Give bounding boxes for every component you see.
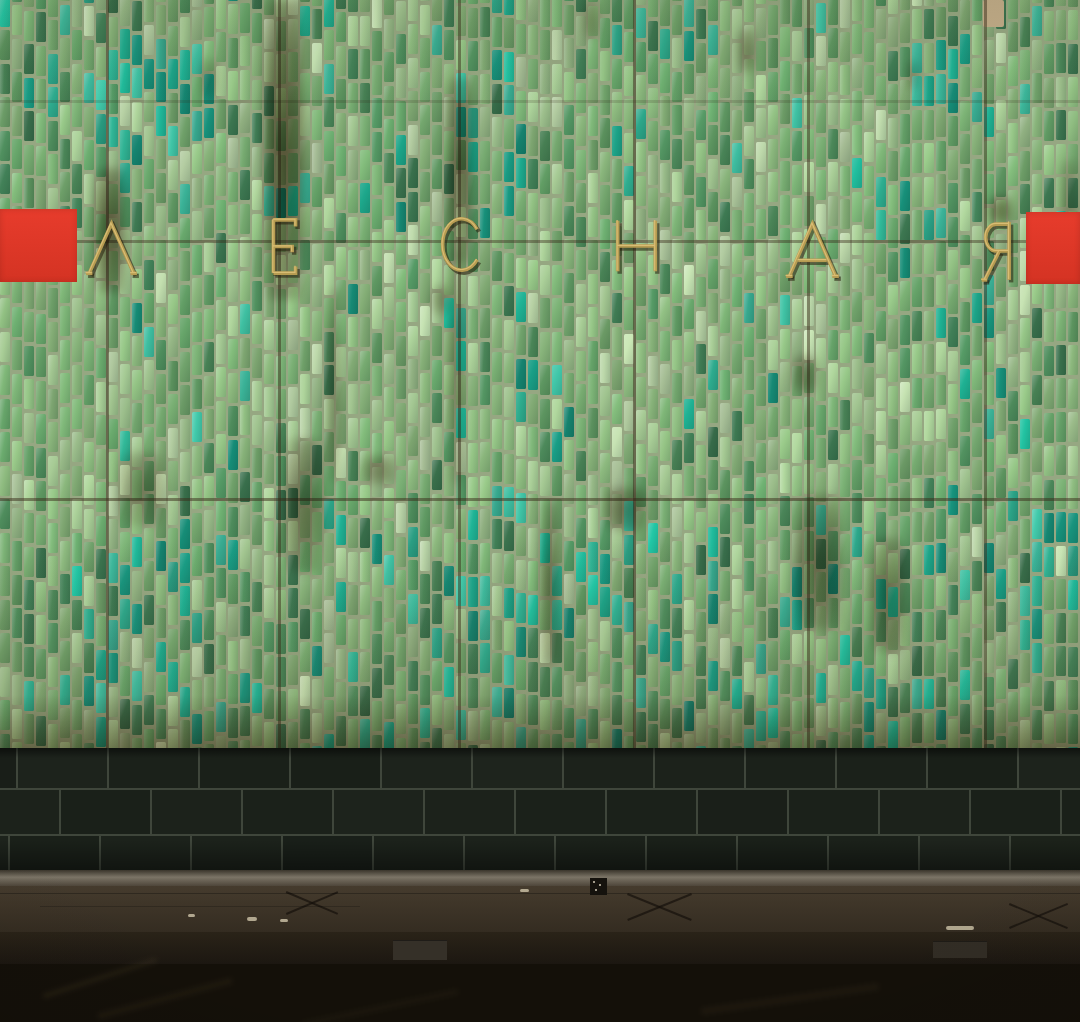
rust-stain [906, 60, 920, 90]
glazed-tile [504, 454, 514, 484]
glazed-tile [684, 433, 694, 463]
glazed-tile [204, 7, 214, 37]
glazed-tile [156, 173, 166, 203]
glazed-tile [996, 535, 1006, 565]
glazed-tile [1020, 117, 1030, 147]
glazed-tile [696, 445, 706, 475]
glazed-tile [924, 210, 934, 240]
glazed-tile [396, 470, 406, 500]
glazed-tile [84, 408, 94, 438]
glazed-tile [492, 184, 502, 214]
glazed-tile [588, 106, 598, 136]
glazed-tile [876, 177, 886, 207]
glazed-tile [672, 440, 682, 470]
glazed-tile [0, 0, 10, 27]
glazed-tile [828, 330, 838, 360]
plinth-brick [425, 790, 514, 834]
glazed-tile [972, 293, 982, 323]
glazed-tile [948, 518, 958, 548]
glazed-tile [888, 0, 898, 14]
glazed-tile [864, 467, 874, 497]
glazed-tile [48, 590, 58, 620]
glazed-tile [660, 398, 670, 428]
glazed-tile [924, 311, 934, 341]
glazed-tile [468, 376, 478, 406]
glazed-tile [720, 504, 730, 534]
glazed-tile [852, 560, 862, 590]
glazed-tile [792, 433, 802, 463]
glazed-tile [108, 84, 118, 114]
glazed-tile [72, 399, 82, 429]
glazed-tile [636, 377, 646, 407]
glazed-tile [912, 244, 922, 274]
glazed-tile [1032, 509, 1042, 539]
glazed-tile [348, 317, 358, 347]
glazed-tile [372, 567, 382, 597]
glazed-tile [600, 0, 610, 14]
glazed-tile [24, 44, 34, 74]
glazed-tile [228, 574, 238, 604]
glazed-tile [48, 355, 58, 385]
glazed-tile [960, 0, 970, 30]
glazed-tile [216, 468, 226, 498]
glazed-tile [384, 588, 394, 618]
glazed-tile [240, 103, 250, 133]
glazed-tile [144, 628, 154, 658]
glazed-tile [96, 0, 106, 10]
glazed-tile [384, 186, 394, 216]
glazed-tile [636, 343, 646, 373]
glazed-tile [732, 110, 742, 140]
glazed-tile [420, 608, 430, 638]
glazed-tile [948, 116, 958, 146]
glazed-tile [360, 0, 370, 12]
glazed-tile [12, 508, 22, 538]
glazed-tile [852, 259, 862, 289]
glazed-tile [480, 643, 490, 673]
glazed-tile [168, 528, 178, 558]
glazed-tile [912, 177, 922, 207]
glazed-tile [1020, 352, 1030, 382]
glazed-tile [384, 622, 394, 652]
glazed-tile [552, 231, 562, 261]
glazed-tile [972, 0, 982, 21]
rust-stain [432, 285, 450, 315]
glazed-tile [1056, 110, 1066, 140]
glazed-tile [408, 24, 418, 54]
glazed-tile [1068, 647, 1078, 677]
glazed-tile [1056, 10, 1066, 40]
glazed-tile [36, 146, 46, 176]
glazed-tile [312, 579, 322, 609]
glazed-tile [480, 543, 490, 573]
glazed-tile [516, 392, 526, 422]
glazed-tile [960, 637, 970, 667]
glazed-tile [1032, 40, 1042, 70]
glazed-tile [792, 634, 802, 664]
glazed-tile [1068, 44, 1078, 74]
glazed-tile [552, 131, 562, 161]
glazed-tile [972, 360, 982, 390]
glazed-tile [768, 0, 778, 1]
glazed-tile [720, 1, 730, 31]
glazed-tile [1044, 413, 1054, 443]
paint-chip [946, 926, 974, 930]
glazed-tile [312, 311, 322, 341]
glazed-tile [444, 0, 454, 27]
glazed-tile [408, 661, 418, 691]
glazed-tile [192, 580, 202, 610]
glazed-tile [252, 13, 262, 43]
glazed-tile [960, 201, 970, 231]
glazed-tile [228, 339, 238, 369]
glazed-tile [768, 440, 778, 470]
glazed-tile [744, 561, 754, 591]
glazed-tile [60, 105, 70, 135]
glazed-tile [1032, 140, 1042, 170]
glazed-tile [48, 556, 58, 586]
glazed-tile [108, 318, 118, 348]
glazed-tile [972, 58, 982, 88]
glazed-tile [912, 579, 922, 609]
glazed-tile [708, 0, 718, 21]
glazed-tile [672, 72, 682, 102]
glazed-tile [288, 622, 298, 652]
glazed-tile [396, 202, 406, 232]
glazed-tile [708, 561, 718, 591]
glazed-tile [600, 621, 610, 651]
glazed-tile [732, 277, 742, 307]
glazed-tile [1008, 223, 1018, 253]
glazed-tile [1020, 184, 1030, 214]
scratch-line [0, 893, 1080, 894]
glazed-tile [516, 560, 526, 590]
glazed-tile [876, 143, 886, 173]
glazed-tile [1056, 345, 1066, 375]
glazed-tile [36, 12, 46, 42]
glazed-tile [636, 42, 646, 72]
glazed-tile [684, 31, 694, 61]
glazed-tile [516, 627, 526, 657]
plinth-bottom-shade [0, 840, 1080, 874]
metro-station-photo: ЛЕСНАЯ [0, 0, 1080, 1022]
glazed-tile [12, 407, 22, 437]
glazed-tile [576, 619, 586, 649]
glazed-tile [684, 500, 694, 530]
glazed-tile [876, 0, 886, 6]
glazed-tile [480, 409, 490, 439]
glazed-tile [912, 311, 922, 341]
glazed-tile [168, 662, 178, 692]
glazed-tile [120, 331, 130, 361]
glazed-tile [1008, 391, 1018, 421]
glazed-tile [192, 111, 202, 141]
glazed-tile [120, 63, 130, 93]
glazed-tile [156, 374, 166, 404]
glazed-tile [36, 347, 46, 377]
glazed-tile [528, 59, 538, 89]
glazed-tile [864, 501, 874, 531]
glazed-tile [1056, 43, 1066, 73]
glazed-tile [792, 165, 802, 195]
glazed-tile [336, 79, 346, 109]
glazed-tile [12, 340, 22, 370]
glazed-tile [912, 612, 922, 642]
glazed-tile [228, 105, 238, 135]
glazed-tile [192, 345, 202, 375]
glazed-tile [312, 210, 322, 240]
glazed-tile [336, 247, 346, 277]
glazed-tile [756, 0, 766, 4]
glazed-tile [84, 308, 94, 338]
glazed-tile [900, 147, 910, 177]
glazed-tile [1056, 512, 1066, 542]
glazed-tile [876, 210, 886, 240]
glazed-tile [420, 407, 430, 437]
glazed-tile [96, 348, 106, 378]
rust-stain [605, 487, 647, 532]
glazed-tile [600, 185, 610, 215]
glazed-tile [732, 210, 742, 240]
glazed-tile [408, 426, 418, 456]
glazed-tile [996, 167, 1006, 197]
glazed-tile [720, 571, 730, 601]
glazed-tile [888, 218, 898, 248]
glazed-tile [564, 340, 574, 370]
glazed-tile [792, 466, 802, 496]
track-streak [301, 988, 459, 1022]
glazed-tile [540, 64, 550, 94]
glazed-tile [372, 165, 382, 195]
glazed-tile [744, 193, 754, 223]
glazed-tile [924, 646, 934, 676]
glazed-tile [540, 399, 550, 429]
glazed-tile [492, 251, 502, 281]
glazed-tile [288, 354, 298, 384]
glazed-tile [684, 0, 694, 27]
glazed-tile [876, 512, 886, 542]
glazed-tile [648, 523, 658, 553]
glazed-tile [384, 220, 394, 250]
glazed-tile [1020, 419, 1030, 449]
glazed-tile [696, 311, 706, 341]
glazed-tile [840, 668, 850, 698]
plinth-brick [880, 790, 969, 834]
glazed-tile [180, 553, 190, 583]
glazed-tile [204, 376, 214, 406]
paint-chip [280, 919, 288, 922]
glazed-tile [864, 233, 874, 263]
glazed-tile [144, 0, 154, 22]
glazed-tile [0, 667, 10, 697]
glazed-tile [168, 562, 178, 592]
glazed-tile [60, 440, 70, 470]
glazed-tile [600, 654, 610, 684]
glazed-tile [588, 508, 598, 538]
glazed-tile [780, 228, 790, 258]
glazed-tile [48, 121, 58, 151]
glazed-tile [528, 293, 538, 323]
glazed-tile [408, 58, 418, 88]
glazed-tile [732, 579, 742, 609]
glazed-tile [240, 3, 250, 33]
glazed-tile [204, 610, 214, 640]
glazed-tile [924, 612, 934, 642]
glazed-tile [48, 322, 58, 352]
glazed-tile [744, 0, 754, 22]
glazed-tile [264, 622, 274, 652]
glazed-tile [936, 509, 946, 539]
glazed-tile [528, 92, 538, 122]
glazed-tile [912, 210, 922, 240]
glazed-tile [84, 375, 94, 405]
glazed-tile [1056, 412, 1066, 442]
glazed-tile [960, 168, 970, 198]
glazed-tile [744, 662, 754, 692]
glazed-tile [840, 233, 850, 263]
glazed-tile [300, 575, 310, 605]
glazed-tile [156, 206, 166, 236]
glazed-tile [36, 414, 46, 444]
glazed-tile [1020, 285, 1030, 315]
glazed-tile [96, 650, 106, 680]
glazed-tile [888, 185, 898, 215]
glazed-tile [12, 374, 22, 404]
glazed-tile [24, 346, 34, 376]
glazed-tile [108, 17, 118, 47]
glazed-tile [756, 577, 766, 607]
glazed-tile [768, 608, 778, 638]
glazed-tile [792, 399, 802, 429]
glazed-tile [108, 117, 118, 147]
glazed-tile [444, 566, 454, 596]
glazed-tile [756, 644, 766, 674]
glazed-tile [180, 184, 190, 214]
glazed-tile [408, 594, 418, 624]
glazed-tile [84, 509, 94, 539]
glazed-tile [324, 231, 334, 261]
glazed-tile [888, 654, 898, 684]
glazed-tile [852, 58, 862, 88]
glazed-tile [972, 661, 982, 691]
glazed-tile [864, 367, 874, 397]
glazed-tile [516, 660, 526, 690]
glazed-tile [180, 17, 190, 47]
glazed-tile [180, 50, 190, 80]
glazed-tile [1020, 318, 1030, 348]
glazed-tile [36, 79, 46, 109]
glazed-tile [684, 634, 694, 664]
glazed-tile [636, 310, 646, 340]
glazed-tile [24, 312, 34, 342]
glazed-tile [504, 119, 514, 149]
glazed-tile [24, 480, 34, 510]
glazed-tile [672, 5, 682, 35]
glazed-tile [48, 422, 58, 452]
glazed-tile [156, 407, 166, 437]
glazed-tile [528, 193, 538, 223]
glazed-tile [756, 443, 766, 473]
glazed-tile [552, 432, 562, 462]
glazed-tile [108, 352, 118, 382]
glazed-tile [192, 211, 202, 241]
glazed-tile [324, 64, 334, 94]
glazed-tile [240, 36, 250, 66]
glazed-tile [636, 544, 646, 574]
glazed-tile [420, 105, 430, 135]
glazed-tile [756, 477, 766, 507]
glazed-tile [612, 628, 622, 658]
glazed-tile [492, 452, 502, 482]
glazed-tile [204, 175, 214, 205]
glazed-tile [180, 586, 190, 616]
glazed-tile [792, 0, 802, 27]
glazed-tile [936, 543, 946, 573]
glazed-tile [720, 303, 730, 333]
glazed-tile [492, 84, 502, 114]
glazed-tile [660, 498, 670, 528]
glazed-tile [840, 0, 850, 28]
glazed-tile [84, 107, 94, 137]
glazed-tile [420, 206, 430, 236]
glazed-tile [756, 276, 766, 306]
glazed-tile [372, 65, 382, 95]
glazed-tile [972, 594, 982, 624]
glazed-tile [384, 488, 394, 518]
glazed-tile [348, 284, 358, 314]
glazed-tile [636, 444, 646, 474]
glazed-tile [168, 26, 178, 56]
glazed-tile [420, 507, 430, 537]
glazed-tile [684, 64, 694, 94]
glazed-tile [696, 378, 706, 408]
glazed-tile [132, 68, 142, 98]
glazed-tile [468, 276, 478, 306]
glazed-tile [480, 308, 490, 338]
glazed-tile [960, 570, 970, 600]
glazed-tile [396, 570, 406, 600]
glazed-tile [252, 482, 262, 512]
rust-stain [583, 0, 599, 40]
glazed-tile [60, 0, 70, 1]
glazed-tile [144, 561, 154, 591]
glazed-tile [540, 332, 550, 362]
glazed-tile [576, 116, 586, 146]
glazed-tile [696, 612, 706, 642]
glazed-tile [636, 109, 646, 139]
glazed-tile [912, 646, 922, 676]
glazed-tile [996, 100, 1006, 130]
glazed-tile [360, 652, 370, 682]
glazed-tile [564, 38, 574, 68]
glazed-tile [900, 449, 910, 479]
glazed-tile [732, 0, 742, 6]
etched-x-mark [286, 891, 339, 914]
glazed-tile [72, 633, 82, 663]
glazed-tile [432, 561, 442, 591]
glazed-tile [120, 599, 130, 629]
glazed-tile [576, 384, 586, 414]
glazed-tile [1056, 579, 1066, 609]
glazed-tile [84, 174, 94, 204]
glazed-tile [588, 207, 598, 237]
glazed-tile [588, 408, 598, 438]
glazed-tile [864, 166, 874, 196]
platform-front-face [0, 932, 1080, 964]
glazed-tile [216, 200, 226, 230]
glazed-tile [528, 561, 538, 591]
glazed-tile [432, 628, 442, 658]
